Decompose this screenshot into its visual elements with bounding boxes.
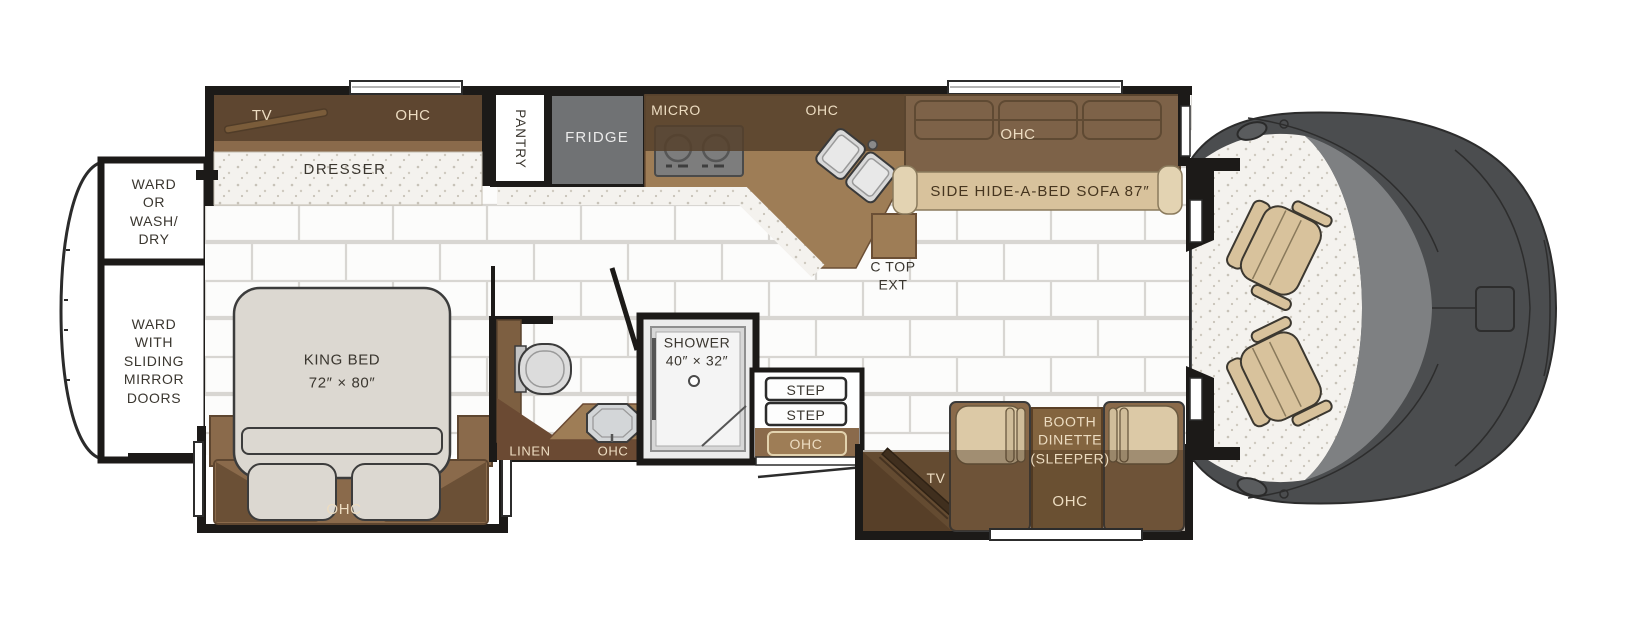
sofa-arm-right — [1158, 166, 1182, 214]
ward-sliding-mirror-closet — [101, 262, 207, 460]
pillow-right — [352, 464, 440, 520]
shower-drain — [689, 376, 699, 386]
cab — [1186, 112, 1556, 503]
dinette-ohc-overlay — [863, 450, 1185, 531]
sofa-arm-left — [893, 166, 917, 214]
pillow-left — [248, 464, 336, 520]
cab-floor — [1192, 134, 1362, 482]
kitchen-ohc-band — [645, 95, 905, 151]
entry-ohc-box — [768, 432, 846, 455]
entry-threshold — [756, 457, 858, 465]
vanity-sink — [587, 404, 638, 442]
step-2-box — [766, 403, 846, 425]
rear-cap — [61, 162, 102, 459]
king-bed-mattress — [234, 288, 450, 478]
sofa-seat — [905, 172, 1180, 210]
toilet — [515, 344, 571, 394]
hide-a-bed-sofa — [893, 88, 1190, 214]
ward-wash-dry-closet — [101, 160, 207, 262]
dinette-window — [990, 529, 1142, 540]
shower — [640, 316, 756, 462]
step-1-box — [766, 378, 846, 400]
bedroom-slide — [196, 95, 482, 205]
bed-window-left — [194, 442, 203, 516]
sofa-top-window — [948, 81, 1122, 94]
bedroom-top-window — [350, 81, 462, 94]
countertop-extension — [872, 214, 916, 258]
pantry-cabinet — [493, 92, 547, 184]
sofa-side-window — [1181, 106, 1190, 156]
floorplan-drawing — [0, 0, 1625, 630]
nightstand-right — [458, 416, 492, 466]
floorplan-canvas: TV OHC DRESSER WARD OR WASH/ DRY WARD WI… — [0, 0, 1625, 630]
fridge-appliance — [550, 94, 645, 186]
